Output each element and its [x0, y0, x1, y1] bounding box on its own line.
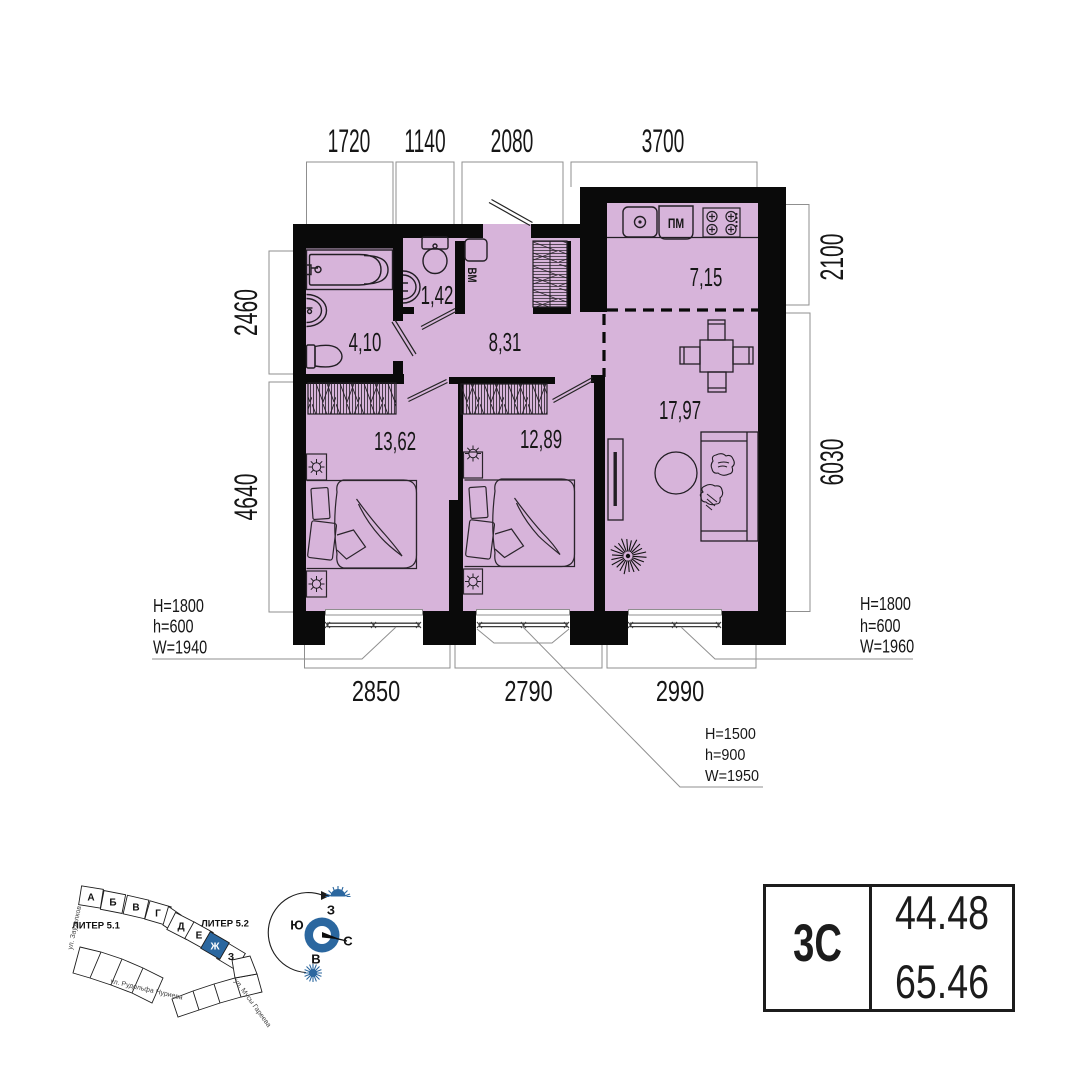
svg-text:4,10: 4,10: [349, 327, 382, 357]
svg-text:Г: Г: [155, 909, 161, 920]
svg-text:С: С: [343, 934, 353, 949]
svg-text:Б: Б: [109, 898, 116, 909]
svg-text:Е: Е: [196, 931, 203, 942]
svg-text:А: А: [87, 893, 94, 904]
svg-text:H=1500: H=1500: [705, 725, 756, 743]
svg-text:7,15: 7,15: [690, 262, 723, 292]
svg-text:h=600: h=600: [153, 616, 193, 637]
svg-text:Ж: Ж: [209, 942, 220, 953]
svg-text:В: В: [132, 903, 139, 914]
svg-text:ПМ: ПМ: [668, 216, 684, 232]
svg-text:13,62: 13,62: [374, 426, 416, 456]
svg-text:2080: 2080: [491, 123, 534, 159]
svg-text:H=1800: H=1800: [860, 593, 911, 614]
svg-text:17,97: 17,97: [659, 395, 701, 425]
svg-text:W=1960: W=1960: [860, 636, 914, 657]
svg-text:4640: 4640: [227, 474, 264, 521]
svg-text:3С: 3С: [793, 913, 842, 973]
svg-text:1,42: 1,42: [421, 280, 454, 310]
svg-text:2100: 2100: [813, 234, 850, 281]
svg-text:З: З: [327, 903, 335, 918]
svg-text:Ю: Ю: [290, 918, 303, 933]
svg-text:H=1800: H=1800: [153, 595, 204, 616]
svg-text:44.48: 44.48: [895, 887, 989, 940]
svg-text:2790: 2790: [504, 676, 552, 708]
svg-text:8,31: 8,31: [489, 327, 522, 357]
svg-text:6030: 6030: [813, 439, 850, 486]
svg-text:ЛИТЕР 5.2: ЛИТЕР 5.2: [201, 919, 249, 930]
svg-text:h=600: h=600: [860, 615, 900, 636]
svg-text:2850: 2850: [352, 676, 400, 708]
svg-text:1720: 1720: [328, 123, 371, 159]
svg-text:W=1940: W=1940: [153, 637, 207, 658]
svg-text:2460: 2460: [227, 289, 264, 336]
svg-text:2990: 2990: [656, 676, 704, 708]
svg-text:3700: 3700: [642, 123, 685, 159]
svg-text:1140: 1140: [404, 123, 445, 159]
svg-text:Д: Д: [177, 922, 184, 933]
svg-text:h=900: h=900: [705, 746, 745, 764]
svg-text:ВМ: ВМ: [465, 268, 478, 283]
svg-text:65.46: 65.46: [895, 956, 989, 1009]
svg-text:12,89: 12,89: [520, 424, 562, 454]
svg-text:W=1950: W=1950: [705, 767, 759, 785]
svg-text:З: З: [228, 952, 234, 963]
